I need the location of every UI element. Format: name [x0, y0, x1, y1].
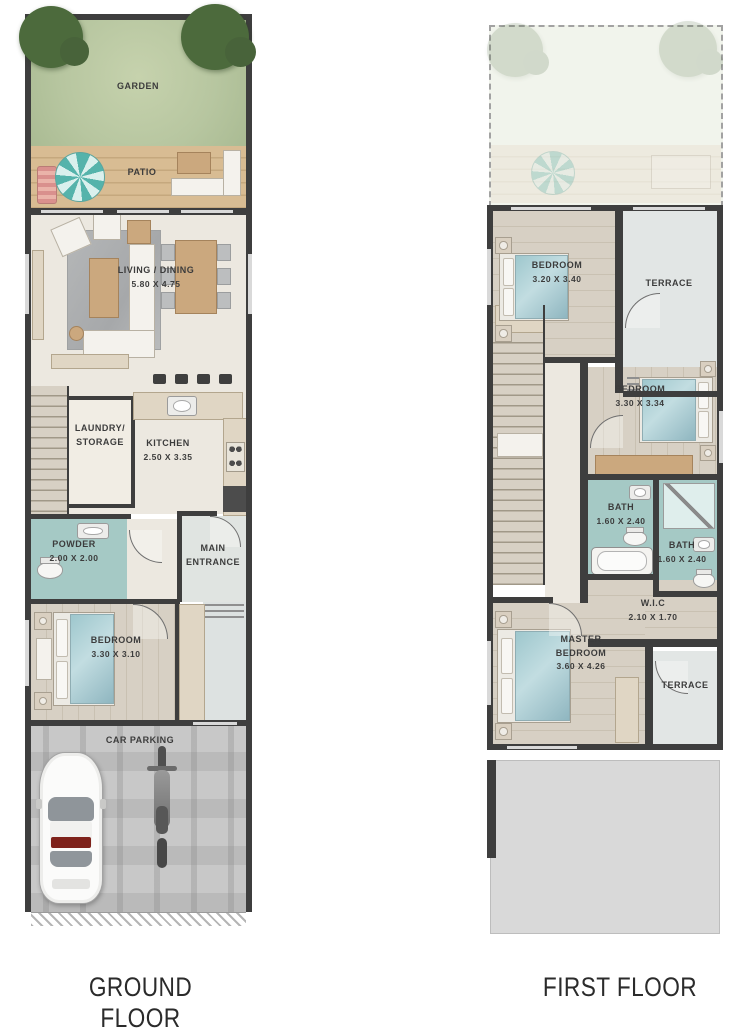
gate [193, 722, 237, 725]
entry-walkway [203, 602, 246, 720]
main-entrance-label: MAIN ENTRANCE [173, 542, 253, 569]
railing [633, 207, 705, 210]
terrace2-label: TERRACE [645, 679, 725, 693]
car-sunroof [51, 837, 91, 848]
exterior-wall [487, 760, 496, 858]
sink-icon [167, 396, 197, 416]
toilet-icon [37, 562, 63, 579]
roof-ghost-area [490, 760, 720, 934]
console-table-icon [32, 250, 44, 340]
interior-wall [588, 574, 653, 580]
window [25, 254, 29, 314]
window [117, 210, 169, 213]
window [41, 210, 103, 213]
wic-label: W.I.C 2.10 X 1.70 [607, 597, 699, 623]
dining-chair-icon [217, 292, 231, 309]
pillow-icon [56, 619, 68, 657]
stair-rail [67, 386, 69, 516]
kitchen-label: KITCHEN 2.50 X 3.35 [118, 437, 218, 463]
motorcycle-icon [147, 746, 177, 870]
tree-icon [19, 6, 83, 68]
terrace1-label: TERRACE [629, 277, 709, 291]
bar-stool-icon [175, 374, 188, 384]
wardrobe [179, 604, 205, 722]
room-name: TERRACE [645, 277, 692, 291]
tree-icon [487, 23, 543, 77]
tree-icon [181, 4, 249, 70]
sink-icon [629, 485, 651, 500]
room-dims: 1.60 X 2.40 [658, 553, 707, 566]
garden-ghost-area [489, 25, 723, 207]
nightstand-icon [495, 237, 512, 254]
exterior-wall [717, 205, 723, 750]
ground-floor-plan: GARDEN PATIO [25, 14, 252, 930]
oven-icon [223, 486, 246, 512]
armchair-icon [93, 214, 121, 240]
tree-icon [659, 21, 717, 77]
car-mirror [100, 799, 106, 809]
interior-wall [175, 604, 179, 720]
outdoor-sofa-icon [651, 155, 711, 189]
pillow-icon [501, 678, 513, 714]
stove-icon [226, 442, 245, 472]
nightstand-icon [495, 611, 512, 628]
room-name: MAIN ENTRANCE [186, 542, 240, 569]
dining-chair-icon [161, 244, 175, 261]
room-dims: 3.30 X 3.10 [92, 648, 141, 661]
bar-stool-icon [153, 374, 166, 384]
car-rear-window [50, 851, 92, 867]
room-dims: 2.50 X 3.35 [144, 451, 193, 464]
bar-stool-icon [197, 374, 210, 384]
floor-plan-canvas: GARDEN PATIO [0, 0, 734, 1024]
interior-wall [580, 480, 588, 603]
driveway-hatch [31, 912, 246, 926]
dining-chair-icon [161, 292, 175, 309]
stairs [493, 333, 543, 585]
nightstand-icon [34, 612, 52, 630]
window [487, 641, 491, 705]
window [248, 254, 252, 314]
pillow-icon [698, 411, 709, 438]
interior-wall [493, 597, 553, 603]
interior-wall [25, 514, 131, 519]
car-trunk [52, 879, 90, 889]
pillow-icon [501, 638, 513, 674]
pillow-icon [56, 661, 68, 699]
window [181, 210, 233, 213]
toilet-icon [623, 531, 647, 546]
room-dims: 3.60 X 4.26 [557, 660, 606, 673]
room-name: BATH [608, 501, 634, 515]
window [507, 746, 577, 749]
window [719, 411, 723, 463]
entry-steps [205, 604, 244, 618]
interior-wall [25, 599, 180, 604]
room-name: KITCHEN [146, 437, 190, 451]
room-name: CAR PARKING [106, 734, 174, 748]
window [25, 620, 29, 686]
bedroom-label: BEDROOM 3.30 X 3.10 [73, 634, 159, 660]
moto-seat [156, 806, 168, 834]
room-name: BEDROOM [91, 634, 142, 648]
room-name: MASTER BEDROOM [556, 633, 607, 660]
interior-wall [580, 363, 588, 483]
room-name: PATIO [128, 166, 157, 180]
nightstand-icon [495, 723, 512, 740]
first-floor-title: FIRST FLOOR [536, 972, 704, 1003]
car-icon [39, 752, 103, 904]
bath1-label: BATH 1.60 X 2.40 [581, 501, 661, 527]
room-name: BEDROOM [532, 259, 583, 273]
room-name: TERRACE [661, 679, 708, 693]
sink-icon [77, 523, 109, 539]
umbrella-icon [531, 151, 575, 195]
master-bedroom-label: MASTER BEDROOM 3.60 X 4.26 [537, 633, 625, 673]
room-name: GARDEN [117, 80, 159, 94]
first-floor-plan: BEDROOM 3.20 X 3.40 TERRACE BEDROOM 3.30… [487, 25, 723, 940]
chair-icon [36, 638, 52, 680]
interior-wall [615, 211, 623, 393]
exterior-wall [25, 14, 31, 912]
bench-icon [497, 433, 543, 457]
exterior-wall [246, 14, 252, 912]
bedroom2-label: BEDROOM 3.30 X 3.34 [595, 383, 685, 409]
room-dims: 3.20 X 3.40 [533, 273, 582, 286]
pillow-icon [503, 288, 514, 316]
side-table-icon [127, 220, 151, 244]
room-dims: 1.60 X 2.40 [597, 515, 646, 528]
room-name: BEDROOM [615, 383, 666, 397]
living-dining-label: LIVING / DINING 5.80 X 4.75 [96, 264, 216, 290]
toilet-icon [693, 573, 715, 588]
room-name: BATH [669, 539, 695, 553]
window [511, 207, 591, 210]
window [487, 249, 491, 305]
nightstand-icon [34, 692, 52, 710]
nightstand-icon [700, 445, 716, 461]
lounge-chair-icon [37, 166, 57, 204]
ground-floor-title: GROUND FLOOR [54, 972, 226, 1034]
bedroom1-label: BEDROOM 3.20 X 3.40 [512, 259, 602, 285]
room-dims: 3.30 X 3.34 [616, 397, 665, 410]
room-name: LIVING / DINING [118, 264, 195, 278]
moto-rear-wheel [157, 838, 167, 868]
stair-rail [543, 305, 545, 585]
room-dims: 5.80 X 4.75 [132, 278, 181, 291]
outdoor-sofa-icon [223, 150, 241, 196]
car-windshield [48, 797, 94, 821]
room-dims: 2.10 X 1.70 [629, 611, 678, 624]
garden-label: GARDEN [83, 80, 193, 94]
patio-label: PATIO [97, 166, 187, 180]
room-name: POWDER [52, 538, 96, 552]
nightstand-icon [700, 361, 716, 377]
stairs [31, 386, 67, 516]
car-parking-label: CAR PARKING [75, 734, 205, 748]
stool-icon [69, 326, 84, 341]
interior-wall [645, 647, 653, 744]
shower-icon [663, 483, 715, 529]
wardrobe [615, 677, 639, 743]
car-mirror [36, 799, 42, 809]
powder-label: POWDER 2.00 X 2.00 [28, 538, 120, 564]
cabinet-icon [51, 354, 129, 369]
dining-chair-icon [217, 268, 231, 285]
dresser-icon [595, 455, 693, 475]
bathtub-icon [591, 547, 653, 575]
bar-stool-icon [219, 374, 232, 384]
bath2-label: BATH 1.60 X 2.40 [645, 539, 719, 565]
nightstand-icon [495, 325, 512, 342]
room-dims: 2.00 X 2.00 [50, 552, 99, 565]
room-name: W.I.C [641, 597, 666, 611]
dining-chair-icon [217, 244, 231, 261]
